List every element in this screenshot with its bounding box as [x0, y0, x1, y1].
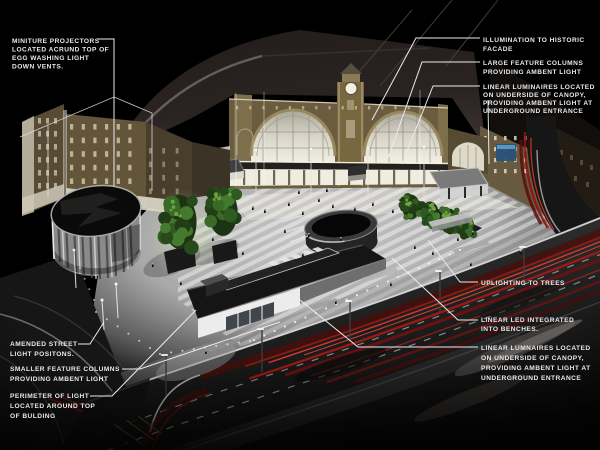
svg-text:LINEAR LUMINAIRES LOCATED: LINEAR LUMINAIRES LOCATED [483, 84, 595, 91]
svg-text:ON UNDERSIDE OF CANOPY,: ON UNDERSIDE OF CANOPY, [483, 92, 586, 99]
svg-text:LOCATED ACRUND TOP OF: LOCATED ACRUND TOP OF [12, 47, 109, 54]
svg-text:UNDERGROUND ENTRANCE: UNDERGROUND ENTRANCE [481, 375, 581, 382]
svg-text:AMENDED STREET: AMENDED STREET [10, 341, 77, 348]
svg-text:PROVIDING AMBENT LIGHT: PROVIDING AMBENT LIGHT [10, 376, 108, 383]
svg-text:PROVIDING AMBENT LIGHT AT: PROVIDING AMBENT LIGHT AT [483, 100, 593, 107]
svg-text:PROVIDING AMBENT LIGHT: PROVIDING AMBENT LIGHT [483, 69, 581, 76]
svg-text:EGG WASHING LIGHT: EGG WASHING LIGHT [12, 55, 89, 62]
svg-text:DOWN VENTS.: DOWN VENTS. [12, 64, 63, 71]
svg-text:UPLIGHTING TO TREES: UPLIGHTING TO TREES [481, 280, 565, 287]
svg-text:UNDERGROUND ENTRANCE: UNDERGROUND ENTRANCE [483, 108, 583, 115]
svg-text:MINITURE PROJECTORS: MINITURE PROJECTORS [12, 38, 100, 45]
svg-text:FACADE: FACADE [483, 46, 513, 53]
svg-text:LARGE FEATURE COLUMNS: LARGE FEATURE COLUMNS [483, 60, 583, 67]
svg-text:ILLUMINATION TO HISTORIC: ILLUMINATION TO HISTORIC [483, 37, 585, 44]
svg-text:SMALLER FEATURE COLUMNS: SMALLER FEATURE COLUMNS [10, 366, 120, 373]
svg-text:LINEAR LUMNAIRES LOCATED: LINEAR LUMNAIRES LOCATED [481, 345, 591, 352]
svg-text:PROVIDING AMBENT LIGHT AT: PROVIDING AMBENT LIGHT AT [481, 365, 591, 372]
svg-text:PERIMETER OF LIGHT: PERIMETER OF LIGHT [10, 393, 89, 400]
svg-text:OF BULDING: OF BULDING [10, 413, 56, 420]
svg-text:ON UNDERSIDE OF CANOPY,: ON UNDERSIDE OF CANOPY, [481, 355, 584, 362]
svg-text:LIGHT POSITONS.: LIGHT POSITONS. [10, 351, 74, 358]
svg-text:LINEAR LED INTEGRATED: LINEAR LED INTEGRATED [481, 317, 574, 324]
svg-text:LOCATED AROUND TOP: LOCATED AROUND TOP [10, 403, 95, 410]
svg-text:INTO BENCHES.: INTO BENCHES. [481, 326, 538, 333]
